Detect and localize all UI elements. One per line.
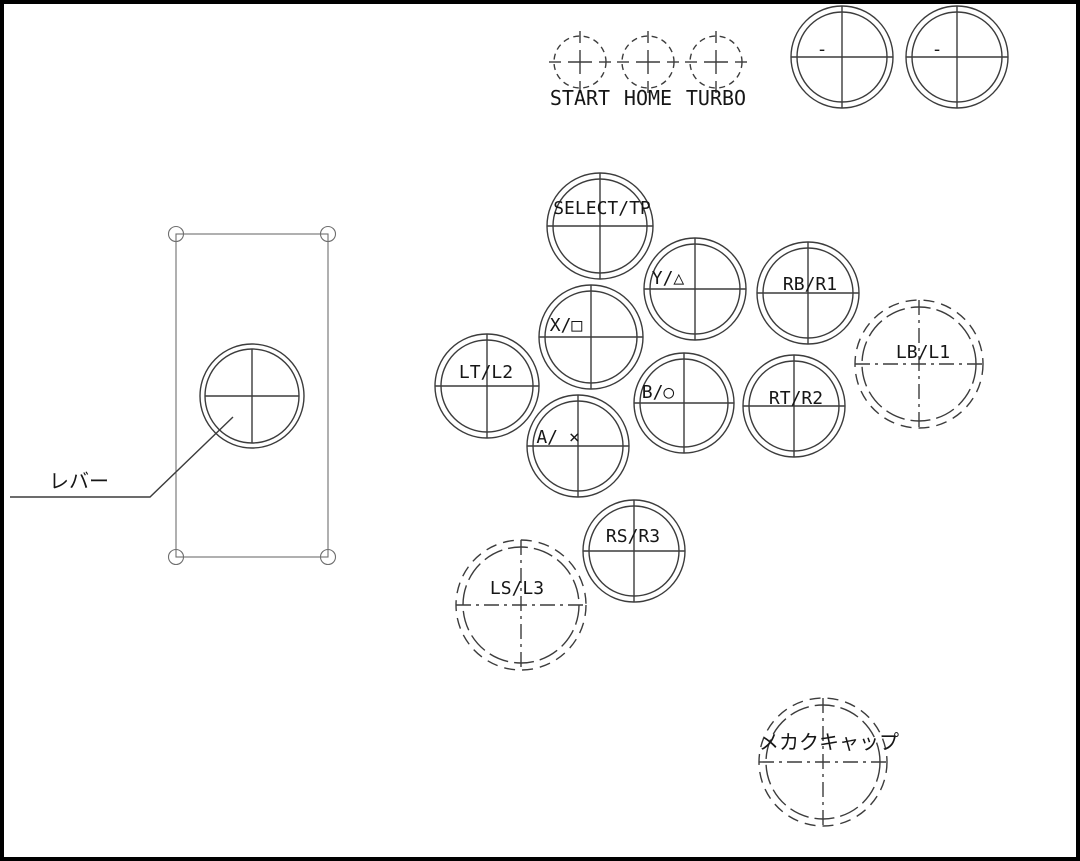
button-rb-r1: RB/R1: [757, 242, 859, 344]
lever-assembly: レバー: [10, 227, 336, 565]
button-ls-l3: LS/L3: [456, 540, 586, 670]
button-rs-r3: RS/R3: [583, 500, 685, 602]
button-x-square: X/□: [539, 285, 643, 389]
button-label-b-circle: B/○: [642, 382, 675, 403]
small-button-label-turbo: TURBO: [686, 86, 746, 110]
aux-button-aux-right: -: [906, 6, 1008, 108]
button-label-y-triangle: Y/△: [652, 268, 685, 289]
lever-leader-line: [10, 417, 233, 497]
button-label-rb-r1: RB/R1: [783, 274, 837, 295]
button-select-tp: SELECT/TP: [547, 173, 653, 279]
button-label-ls-l3: LS/L3: [490, 578, 544, 599]
small-button-label-start: START: [550, 86, 610, 110]
button-rt-r2: RT/R2: [743, 355, 845, 457]
button-label-select-tp: SELECT/TP: [553, 198, 651, 219]
button-label-rt-r2: RT/R2: [769, 388, 823, 409]
button-y-triangle: Y/△: [644, 238, 746, 340]
button-lt-l2: LT/L2: [435, 334, 539, 438]
button-b-circle: B/○: [634, 353, 734, 453]
button-label-lb-l1: LB/L1: [896, 342, 950, 363]
aux-button-aux-left: -: [791, 6, 893, 108]
small-button-home: HOME: [617, 31, 679, 110]
small-button-label-home: HOME: [624, 86, 672, 110]
button-label-rs-r3: RS/R3: [606, 526, 660, 547]
button-lb-l1: LB/L1: [855, 300, 983, 428]
lever-label: レバー: [49, 469, 109, 493]
button-a-cross: A/ ×: [527, 395, 629, 497]
small-button-start: START: [549, 31, 611, 110]
button-label-a-cross: A/ ×: [536, 427, 579, 448]
button-label-mekaku-cap: メカクキャップ: [759, 730, 899, 754]
aux-button-label-aux-right: -: [932, 39, 943, 60]
aux-button-label-aux-left: -: [817, 39, 828, 60]
button-label-x-square: X/□: [550, 315, 583, 336]
layout-drawing-canvas: STARTHOMETURBO--SELECT/TPY/△RB/R1X/□LT/L…: [0, 0, 1080, 861]
small-button-turbo: TURBO: [685, 31, 747, 110]
button-mekaku-cap: メカクキャップ: [759, 698, 899, 826]
drawing-svg: STARTHOMETURBO--SELECT/TPY/△RB/R1X/□LT/L…: [0, 0, 1080, 861]
button-label-lt-l2: LT/L2: [459, 362, 513, 383]
